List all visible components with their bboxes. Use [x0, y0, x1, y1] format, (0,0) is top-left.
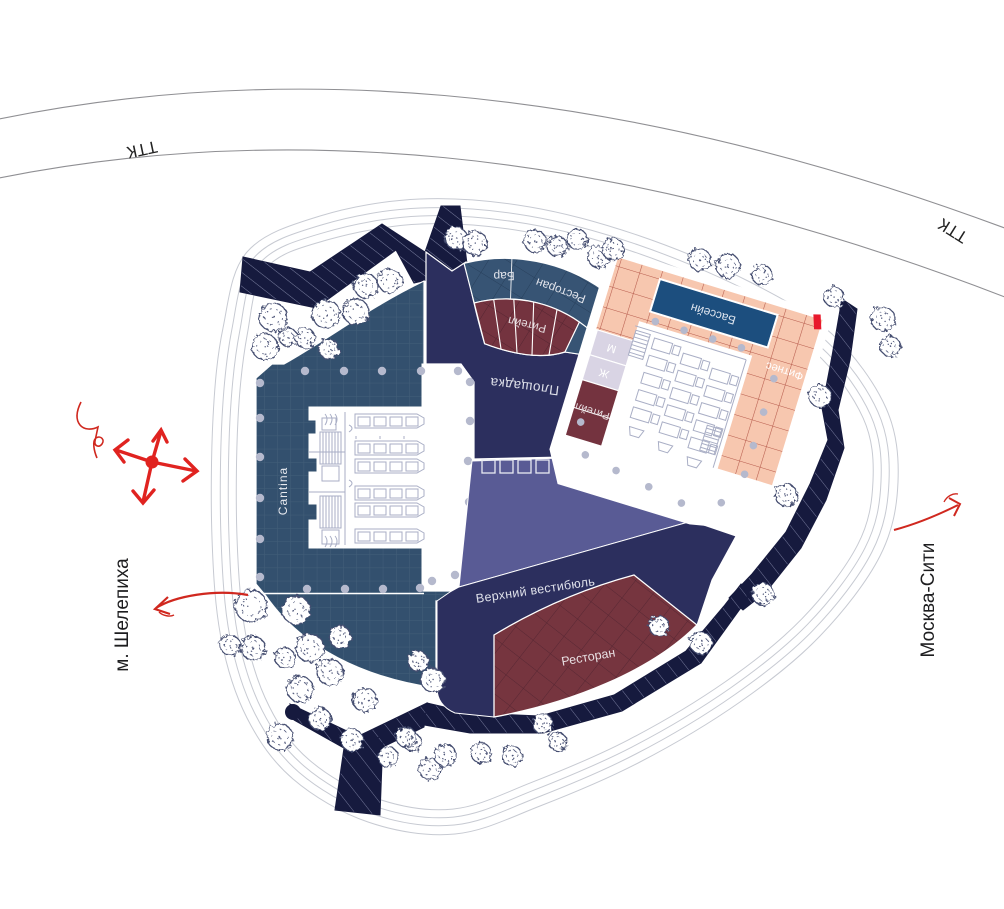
svg-text:Москва-Сити: Москва-Сити — [918, 543, 939, 658]
svg-text:Cantina: Cantina — [276, 467, 290, 515]
svg-text:Бар: Бар — [493, 269, 515, 283]
svg-text:м. Шелепиха: м. Шелепиха — [112, 558, 133, 672]
